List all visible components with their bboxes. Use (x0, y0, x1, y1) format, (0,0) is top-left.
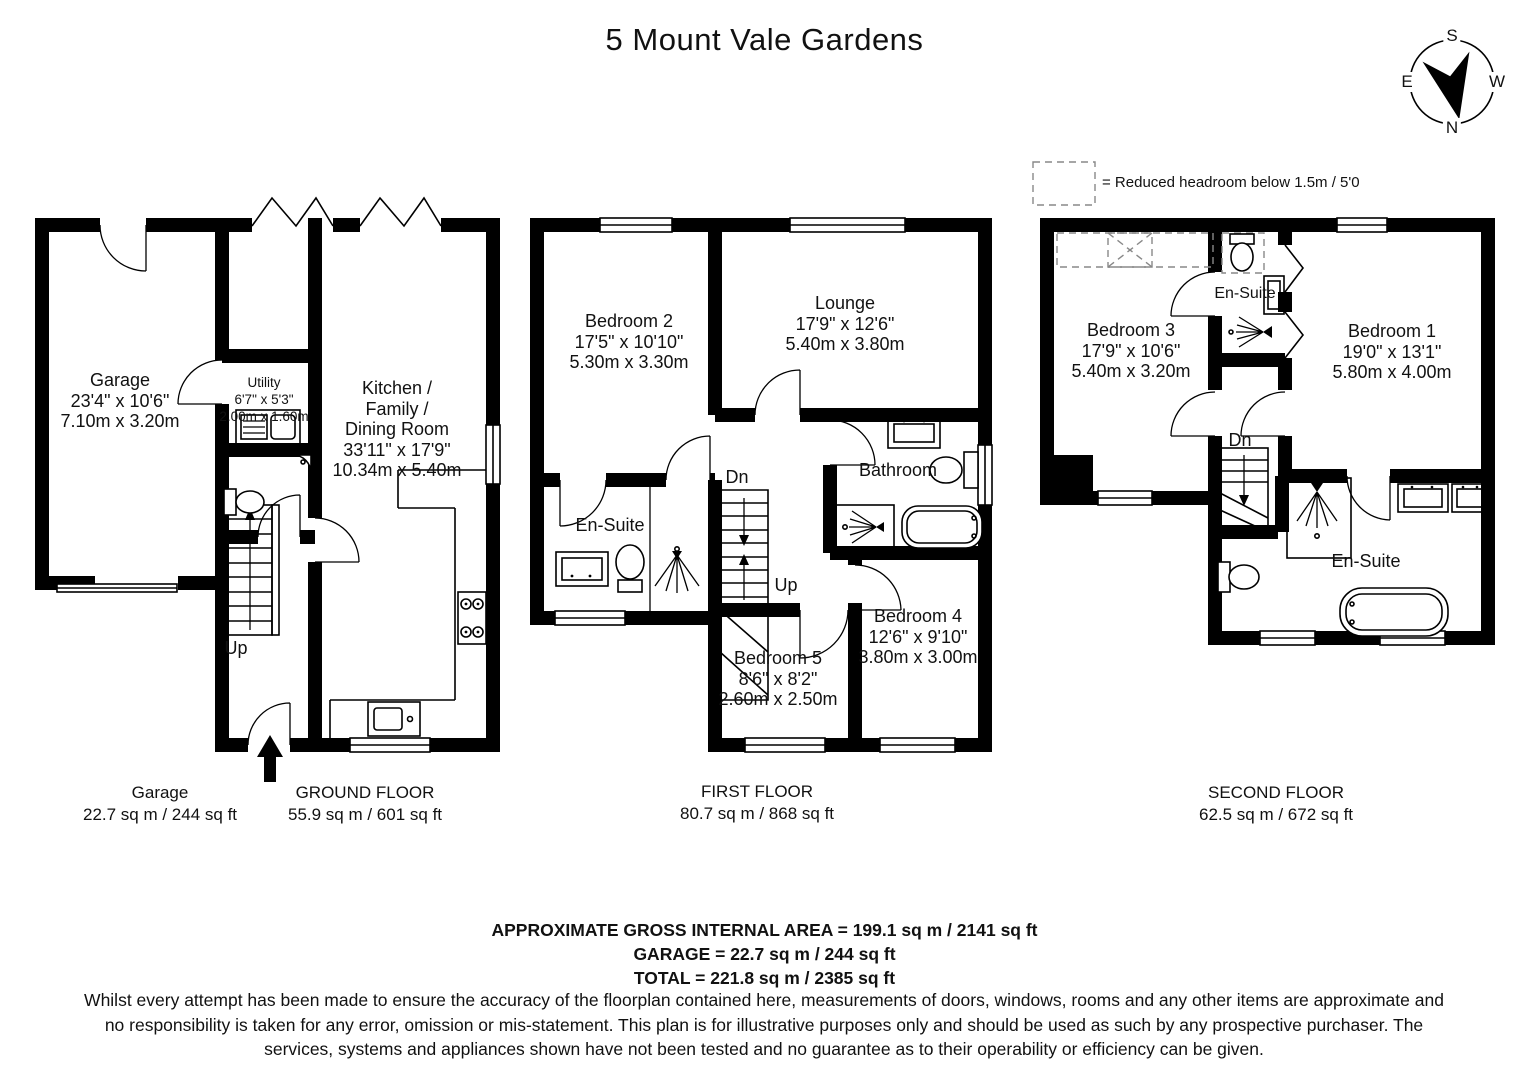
caption-second-floor: SECOND FLOOR 62.5 sq m / 672 sq ft (1199, 782, 1353, 826)
stair-label-dn-first: Dn (725, 467, 748, 488)
ground-floor-plan (35, 198, 500, 782)
toilet-icon (1218, 562, 1259, 592)
caption-first-floor: FIRST FLOOR 80.7 sq m / 868 sq ft (680, 781, 834, 825)
room-label-bedroom3: Bedroom 3 17'9" x 10'6" 5.40m x 3.20m (1071, 320, 1190, 382)
stair-label-up-ground: Up (224, 638, 247, 659)
summary-gross: APPROXIMATE GROSS INTERNAL AREA = 199.1 … (491, 920, 1037, 940)
page-title: 5 Mount Vale Gardens (0, 22, 1529, 58)
compass-label-n: N (1443, 118, 1461, 138)
toilet-icon (1230, 234, 1254, 271)
ensuite-sink-icon (1398, 484, 1488, 512)
room-label-ensuite-second-small: En-Suite (1214, 284, 1275, 305)
shower-icon (1229, 317, 1272, 347)
toilet-icon (930, 452, 978, 488)
room-label-kitchen: Kitchen / Family / Dining Room 33'11" x … (332, 378, 461, 481)
ensuite-sink-icon (556, 552, 608, 586)
second-floor-plan (1040, 218, 1495, 645)
room-label-bathroom: Bathroom (859, 460, 937, 481)
room-label-ensuite-first: En-Suite (575, 515, 644, 536)
stair-label-dn-second: Dn (1228, 430, 1251, 451)
room-label-bedroom2: Bedroom 2 17'5" x 10'10" 5.30m x 3.30m (569, 311, 688, 373)
compass-label-w: W (1486, 72, 1508, 92)
garage-door-opening (57, 584, 177, 592)
room-label-bedroom5: Bedroom 5 8'6" x 8'2" 2.60m x 2.50m (718, 648, 837, 710)
stairs-icon (228, 505, 279, 635)
area-summary: APPROXIMATE GROSS INTERNAL AREA = 199.1 … (0, 918, 1529, 990)
compass-label-s: S (1443, 26, 1460, 46)
room-label-ensuite-second-main: En-Suite (1331, 551, 1400, 572)
shower-icon (836, 505, 894, 549)
window (1098, 218, 1445, 645)
caption-ground-floor: GROUND FLOOR 55.9 sq m / 601 sq ft (288, 782, 442, 826)
kitchen-counter-icon (330, 470, 486, 738)
entrance-arrow-icon (257, 735, 283, 782)
room-label-garage: Garage 23'4" x 10'6" 7.10m x 3.20m (60, 370, 179, 432)
legend-swatch (1033, 162, 1095, 205)
shower-icon (650, 480, 699, 618)
bathroom-sink-icon (888, 418, 940, 448)
toilet-icon (224, 489, 264, 515)
room-label-lounge: Lounge 17'9" x 12'6" 5.40m x 3.80m (785, 293, 904, 355)
stairs-icon (1220, 448, 1268, 532)
kitchen-sink-icon (368, 702, 420, 736)
legend-text: = Reduced headroom below 1.5m / 5'0 (1102, 174, 1360, 191)
room-label-bedroom4: Bedroom 4 12'6" x 9'10" 3.80m x 3.00m (858, 606, 977, 668)
toilet-icon (616, 545, 644, 592)
stair-label-up-first: Up (774, 575, 797, 596)
caption-garage: Garage 22.7 sq m / 244 sq ft (83, 782, 237, 826)
shower-icon (1287, 478, 1351, 558)
disclaimer-text: Whilst every attempt has been made to en… (74, 988, 1454, 1062)
bath-icon (902, 506, 982, 548)
summary-garage: GARAGE = 22.7 sq m / 244 sq ft (633, 944, 895, 964)
room-label-utility: Utility 6'7" x 5'3" 2.00m x 1.60m (219, 374, 308, 425)
ground-walls (35, 218, 500, 752)
compass-label-e: E (1398, 72, 1415, 92)
summary-total: TOTAL = 221.8 sq m / 2385 sq ft (634, 968, 895, 988)
room-label-bedroom1: Bedroom 1 19'0" x 13'1" 5.80m x 4.00m (1332, 321, 1451, 383)
bath-icon (1340, 588, 1448, 636)
